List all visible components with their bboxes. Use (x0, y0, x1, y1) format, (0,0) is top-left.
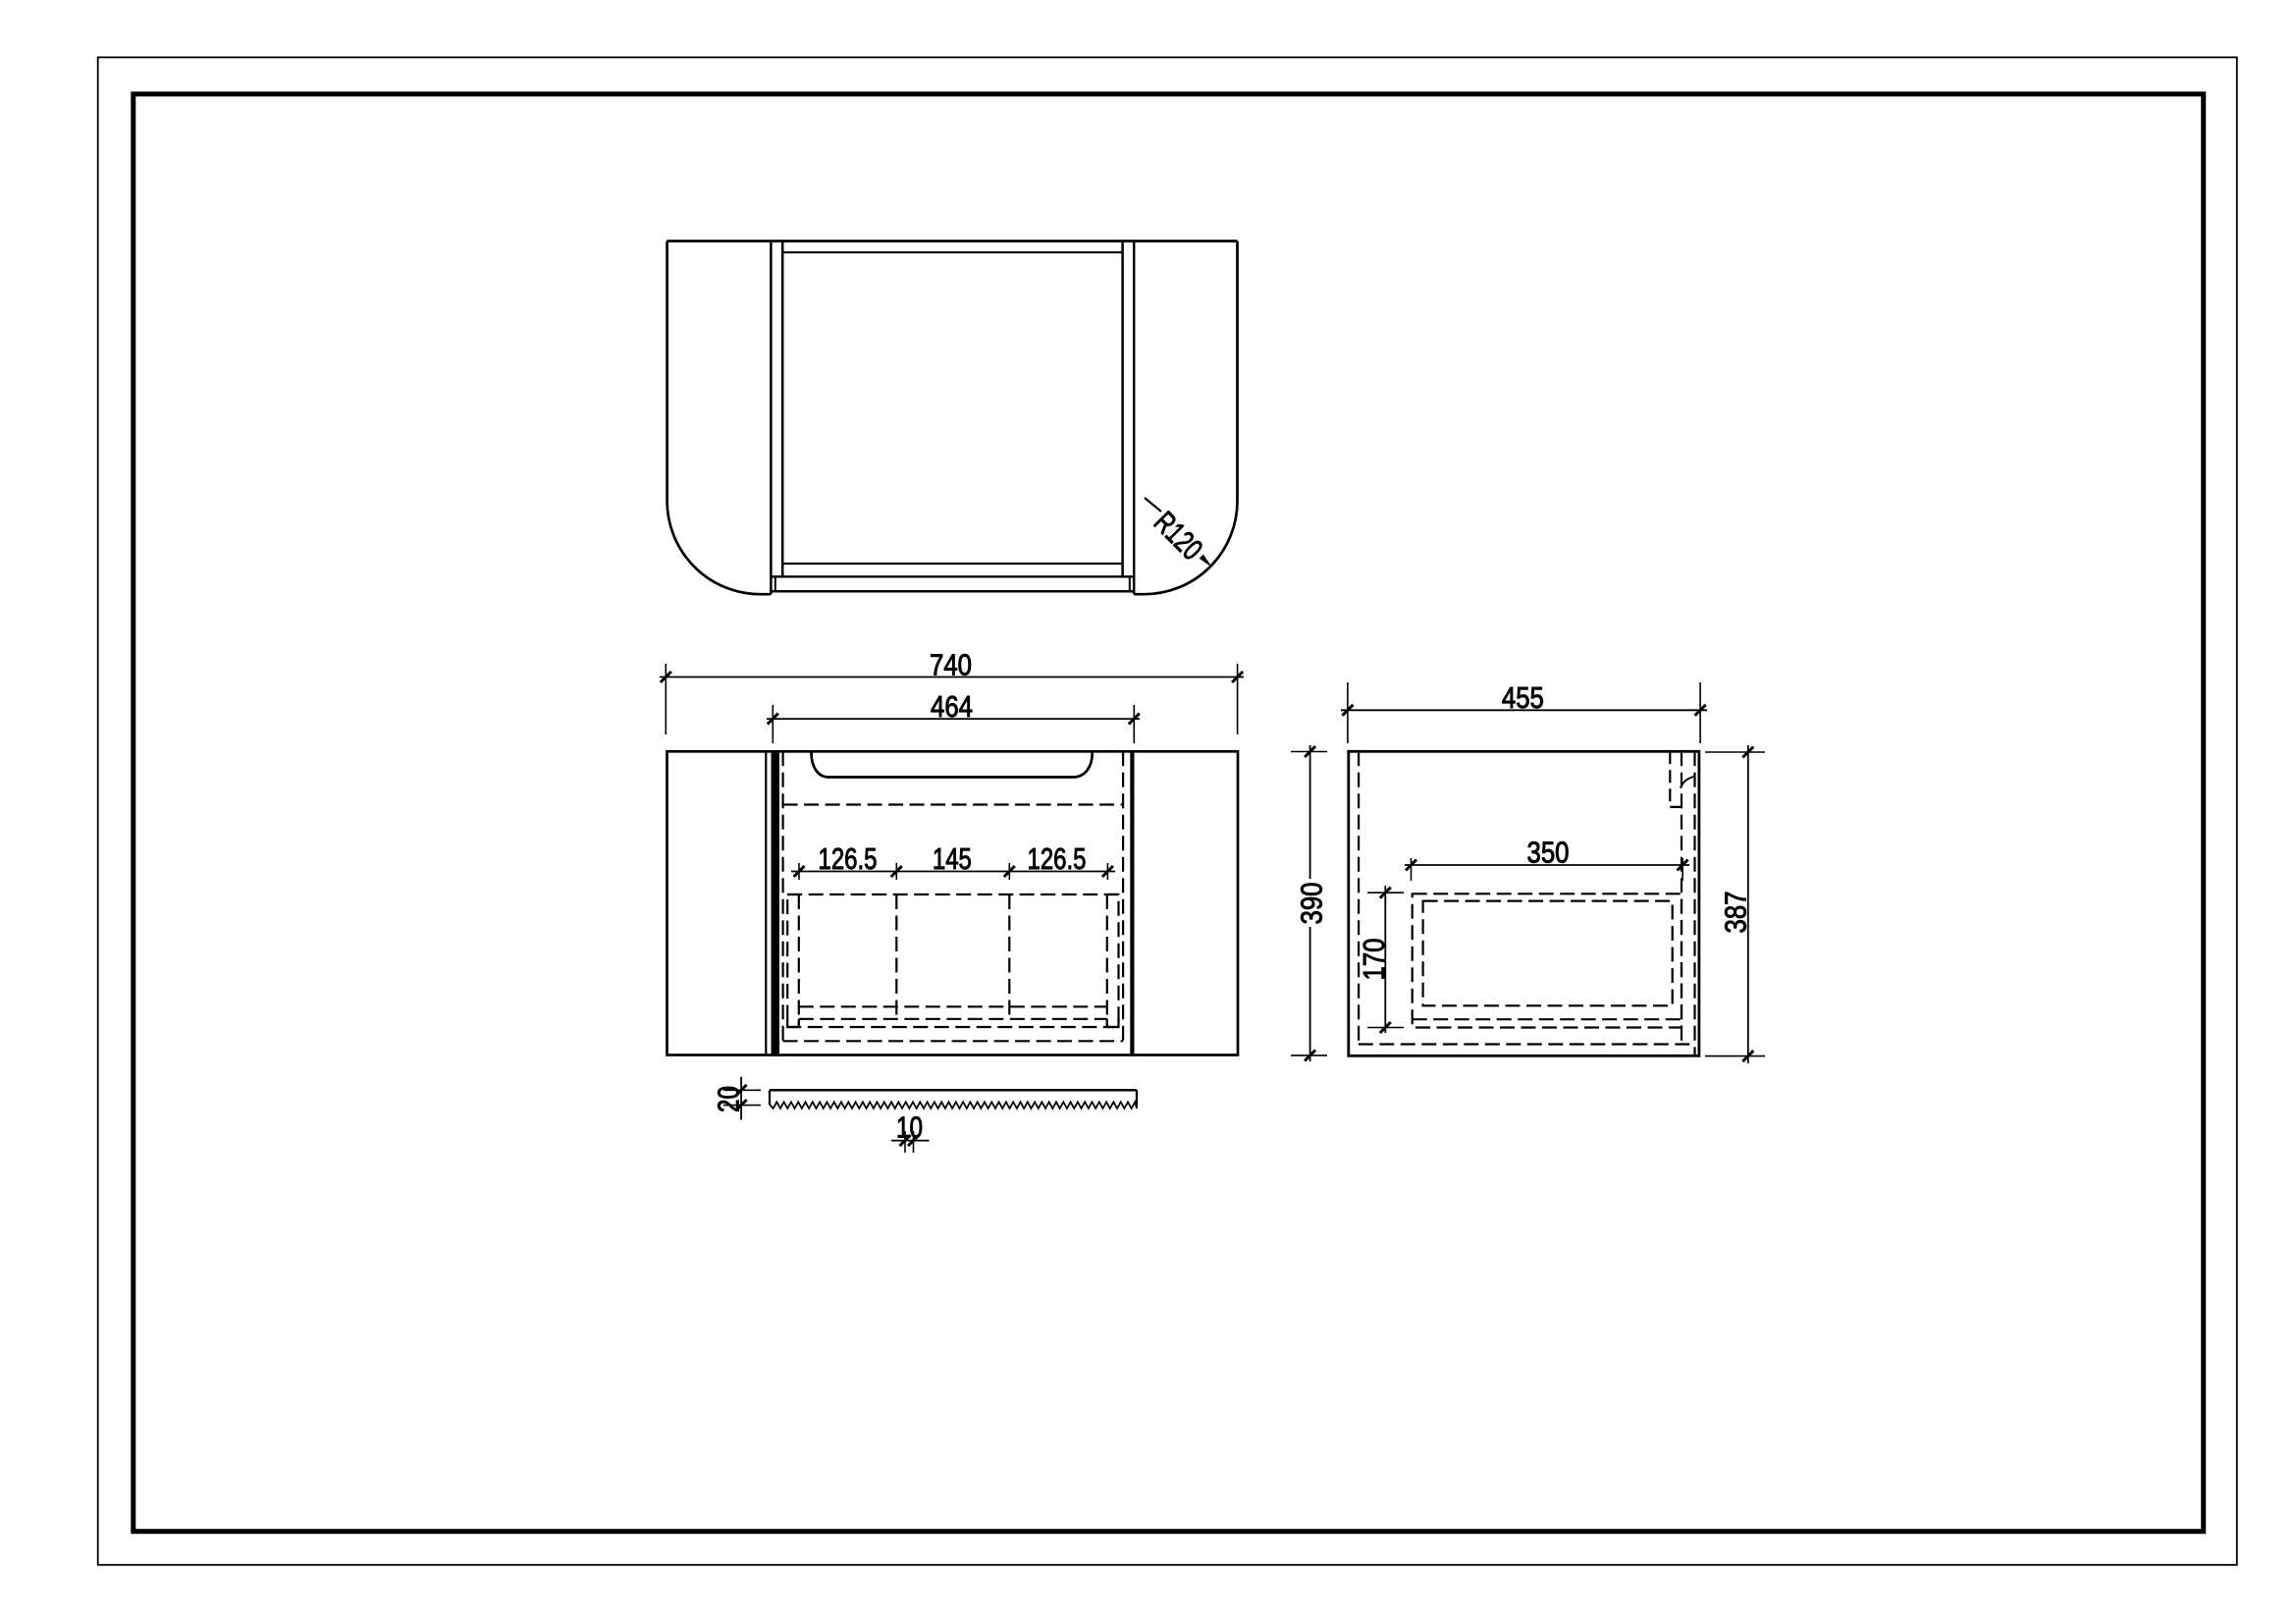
svg-text:464: 464 (931, 689, 973, 724)
svg-text:10: 10 (896, 1110, 923, 1145)
svg-text:20: 20 (712, 1086, 746, 1112)
svg-text:387: 387 (1719, 892, 1753, 934)
svg-text:455: 455 (1502, 680, 1544, 715)
svg-text:126.5: 126.5 (819, 841, 878, 876)
svg-text:145: 145 (933, 841, 972, 876)
svg-text:390: 390 (1295, 883, 1329, 925)
svg-text:170: 170 (1357, 939, 1391, 981)
svg-text:740: 740 (930, 648, 972, 682)
svg-text:350: 350 (1527, 836, 1570, 870)
svg-text:126.5: 126.5 (1028, 841, 1087, 876)
